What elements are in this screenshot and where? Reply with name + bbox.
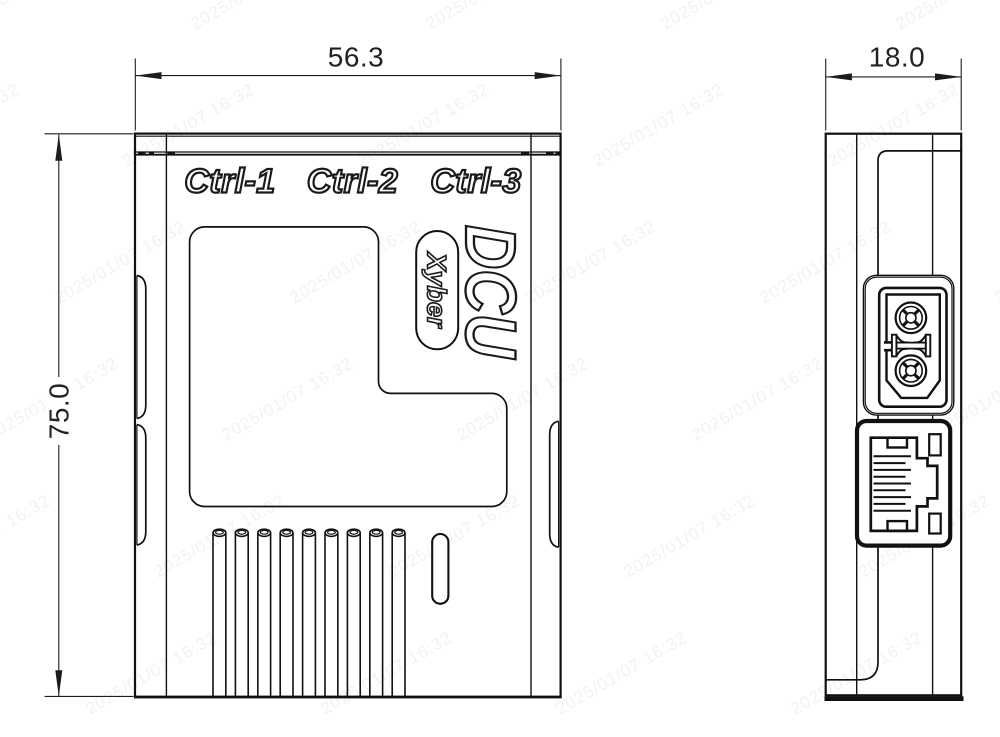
svg-text:Ctrl-3: Ctrl-3 bbox=[430, 163, 521, 201]
svg-text:Xyber: Xyber bbox=[421, 250, 451, 329]
svg-text:DCU: DCU bbox=[450, 225, 529, 360]
svg-text:Ctrl-1: Ctrl-1 bbox=[184, 163, 275, 201]
svg-text:Ctrl-2: Ctrl-2 bbox=[307, 163, 398, 201]
svg-text:18.0: 18.0 bbox=[869, 42, 926, 73]
svg-text:75.0: 75.0 bbox=[44, 383, 75, 440]
svg-text:56.3: 56.3 bbox=[328, 42, 385, 73]
